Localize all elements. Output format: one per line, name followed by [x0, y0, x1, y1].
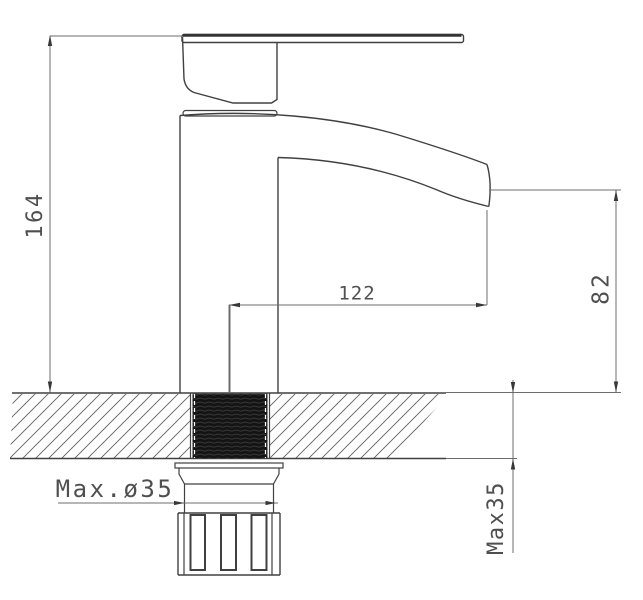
deck-hatch-left — [10, 394, 190, 458]
mounting-deck — [10, 393, 446, 459]
spout-top-curve — [180, 113, 487, 164]
nut-tab-3 — [252, 515, 267, 570]
faucet-technical-drawing: 164 122 82 Max.ø35 Max35 — [0, 0, 643, 600]
label-max-hole-diameter: Max.ø35 — [56, 477, 175, 501]
label-outlet-height: 82 — [591, 271, 614, 305]
deck-hatch-right — [270, 394, 447, 458]
threaded-shank — [193, 394, 268, 459]
handle-base — [183, 37, 278, 103]
spout-tip-face — [487, 165, 490, 207]
nut-tab-2 — [221, 515, 236, 570]
dimension-164 — [48, 35, 182, 393]
flange-lower-right — [274, 468, 280, 484]
label-total-height: 164 — [25, 191, 47, 238]
under-deck-fittings — [175, 463, 283, 575]
label-max-mounting-thickness: Max35 — [486, 481, 508, 555]
label-spout-reach: 122 — [338, 285, 375, 304]
flange-lower-left — [179, 468, 185, 484]
faucet-outline — [180, 35, 490, 394]
drawing-canvas — [0, 0, 643, 600]
spout-underside-curve — [278, 158, 489, 207]
nut-tab-1 — [191, 515, 206, 570]
flange-upper — [175, 463, 283, 468]
